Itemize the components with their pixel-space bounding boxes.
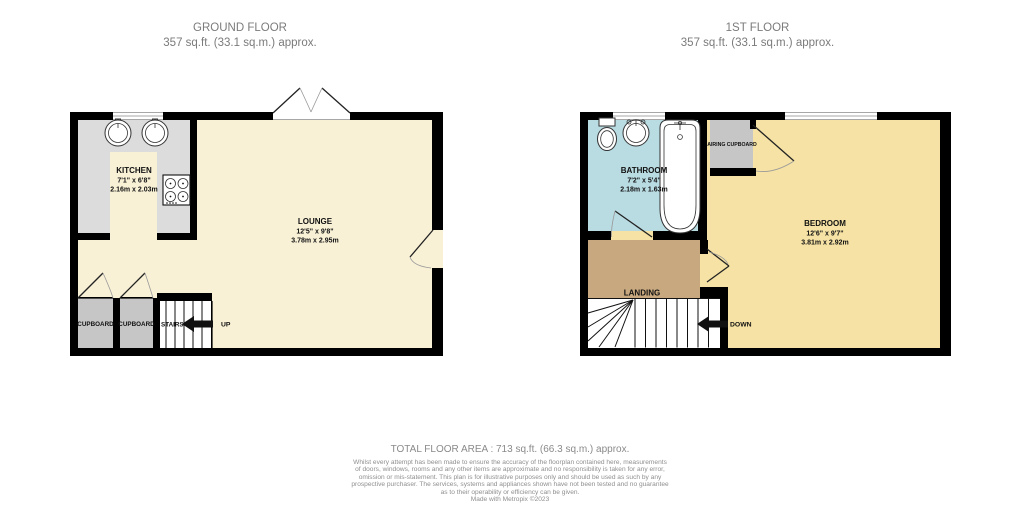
ground-floor-title: GROUND FLOOR 357 sq.ft. (33.1 sq.m.) app… — [60, 21, 420, 51]
ground-floor-area-text: 357 sq.ft. (33.1 sq.m.) approx. — [60, 36, 420, 51]
bedroom-window — [785, 112, 877, 120]
kitchen-label: KITCHEN — [116, 166, 152, 175]
cupboard-2-label: CUPBOARD — [118, 321, 155, 328]
kitchen-dims-imperial: 7'1" x 6'8" — [117, 178, 150, 185]
kitchen-dims-metric: 2.16m x 2.03m — [110, 187, 157, 194]
first-floor-area-text: 357 sq.ft. (33.1 sq.m.) approx. — [575, 36, 940, 51]
bathroom-window — [613, 112, 665, 120]
up-label: UP — [221, 322, 231, 329]
bathroom-dims-imperial: 7'2" x 5'4" — [627, 178, 660, 185]
bathroom-label: BATHROOM — [621, 166, 668, 175]
airing-cupboard-label: AIRING CUPBOARD — [707, 142, 757, 148]
ground-floor-title-text: GROUND FLOOR — [60, 21, 420, 36]
ground-floor-drawing: KITCHEN 7'1" x 6'8" 2.16m x 2.03m LOUNGE… — [60, 80, 450, 370]
bathroom-dims-metric: 2.18m x 1.63m — [620, 187, 667, 194]
disclaimer-text: Whilst every attempt has been made to en… — [0, 459, 1020, 496]
credit-text: Made with Metropix ©2023 — [0, 496, 1020, 503]
bedroom-dims-imperial: 12'6" x 9'7" — [806, 231, 843, 238]
cupboard-1-label: CUPBOARD — [77, 321, 114, 328]
lounge-label: LOUNGE — [298, 217, 333, 226]
ground-floor-plan: KITCHEN 7'1" x 6'8" 2.16m x 2.03m LOUNGE… — [60, 80, 450, 370]
first-floor-drawing: BATHROOM 7'2" x 5'4" 2.18m x 1.63m AIRIN… — [575, 80, 965, 370]
down-label: DOWN — [730, 322, 752, 329]
lounge-dims-metric: 3.78m x 2.95m — [291, 238, 338, 245]
first-floor-plan: BATHROOM 7'2" x 5'4" 2.18m x 1.63m AIRIN… — [575, 80, 965, 370]
first-floor-title: 1ST FLOOR 357 sq.ft. (33.1 sq.m.) approx… — [575, 21, 940, 51]
bath-icon — [660, 120, 700, 233]
stairs-label: STAIRS — [161, 322, 184, 329]
lounge-dims-imperial: 12'5" x 9'8" — [296, 229, 333, 236]
hob-icon — [163, 175, 190, 205]
landing-label: LANDING — [624, 289, 660, 298]
french-doors — [273, 88, 350, 120]
toilet-icon — [598, 118, 617, 151]
bedroom-dims-metric: 3.81m x 2.92m — [801, 240, 848, 247]
basin-icon — [623, 120, 649, 146]
first-floor-title-text: 1ST FLOOR — [575, 21, 940, 36]
bedroom-label: BEDROOM — [804, 219, 846, 228]
total-floor-area: TOTAL FLOOR AREA : 713 sq.ft. (66.3 sq.m… — [0, 444, 1020, 455]
floorplan-page: GROUND FLOOR 357 sq.ft. (33.1 sq.m.) app… — [0, 0, 1020, 508]
